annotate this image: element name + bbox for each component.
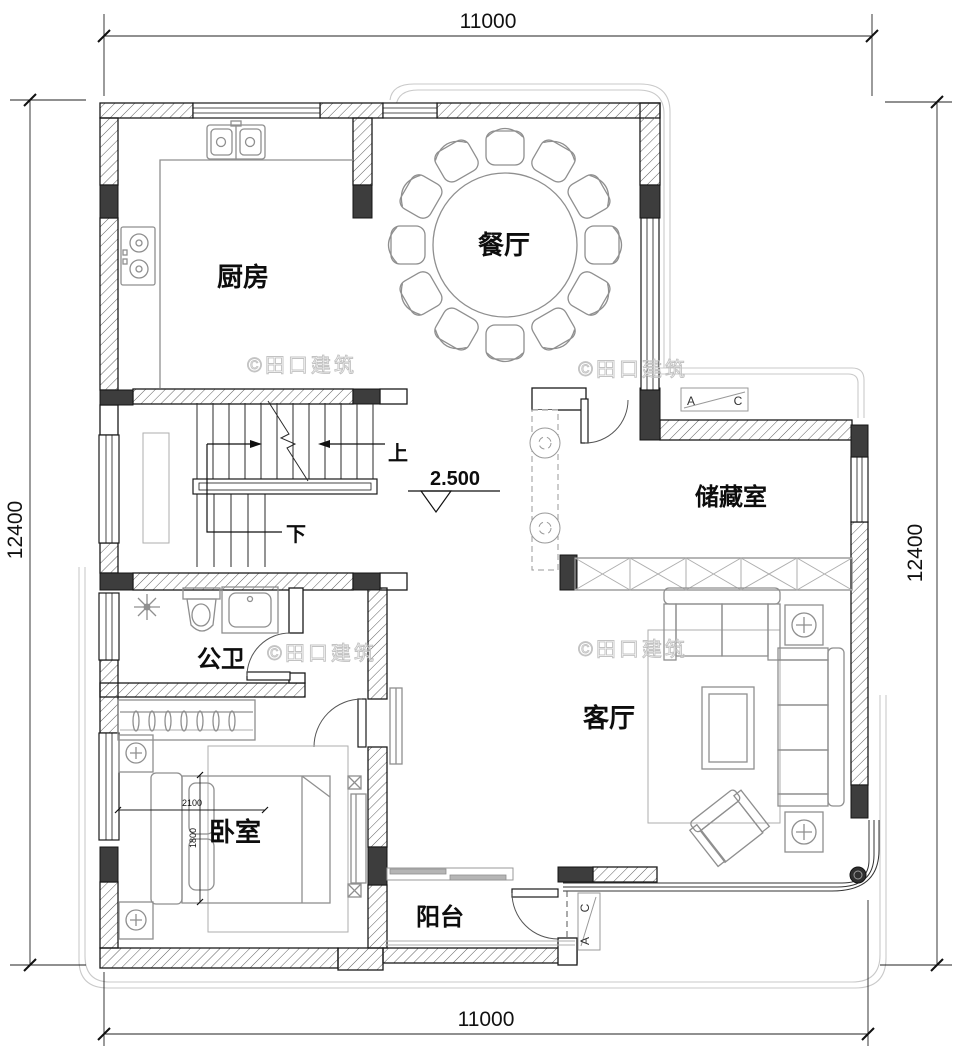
storage-elements [575,558,852,590]
dim-left: 12400 [4,501,27,559]
section-marker-vertical: C A [578,893,600,950]
living-tv-cabinet [390,688,402,764]
watermark-1: ©田口建筑 [247,354,357,377]
section-marker-horizontal: A C [681,388,748,411]
toilet [183,588,220,631]
storage-closet-strip [575,558,852,590]
label-balcony: 阳台 [416,903,464,931]
bathroom-sink [222,587,278,633]
bed-length-dim: 2100 [182,798,202,808]
bedroom-west-window [99,733,119,840]
bed-width-dim: 1800 [188,828,198,848]
armchair [686,785,770,867]
stairs-up-label: 上 [388,442,408,465]
balcony-elements [385,941,575,945]
floor-plan-sheet: 11000 11000 12400 12400 [0,0,960,1060]
kitchen-sink [207,121,265,159]
dim-bottom: 11000 [458,1008,515,1031]
kitchen-stove [121,227,155,285]
label-storage: 储藏室 [695,483,767,511]
north-window-2 [383,103,437,118]
section-letter-a: A [687,394,695,408]
coffee-table [702,687,754,769]
label-living: 客厅 [583,703,635,733]
storage-east-window [851,457,868,522]
label-bathroom: 公卫 [197,646,245,673]
round-column [850,867,866,883]
watermark-3: ©田口建筑 [578,638,688,661]
section-letter-c2: C [578,903,592,912]
label-dining: 餐厅 [478,230,530,260]
dim-right: 12400 [904,524,927,582]
stair-west-window [99,435,119,543]
stair-side-rail [143,433,169,543]
stairs-down-label: 下 [286,524,306,546]
structural-columns [100,185,868,885]
balcony-door [512,889,567,940]
level-marker: 2.500 [408,468,500,512]
stair-treads-up [197,403,373,479]
dim-top: 11000 [460,10,517,33]
stair-handrail [193,479,377,494]
level-value: 2.500 [430,468,480,490]
section-markers: A C C A [578,388,748,950]
label-kitchen: 厨房 [217,262,269,292]
section-letter-a2: A [578,937,592,945]
nightstand-south [119,902,153,939]
watermark-2: ©田口建筑 [578,358,688,381]
side-table-south [785,812,823,852]
storage-door [581,399,628,443]
floor-plan-drawing: 11000 11000 12400 12400 [0,0,960,1060]
watermark-4: ©田口建筑 [267,642,377,665]
closet [118,700,255,740]
bedroom-tv-cabinet [348,776,366,897]
stairs: 上 下 [143,401,408,567]
label-bedroom: 卧室 [209,817,261,847]
side-table-north [785,605,823,645]
stair-break-line [268,401,308,481]
hall-balcony-sliding-door [387,868,513,880]
shower-head [134,594,160,620]
bath-west-window [99,593,119,660]
bathroom-fixtures [134,587,278,633]
sofa-three-seat [778,648,844,806]
bedroom-door [314,699,366,747]
section-letter-c: C [734,394,743,408]
kitchen-north-window [193,103,320,118]
kitchen-fixtures [121,121,353,388]
